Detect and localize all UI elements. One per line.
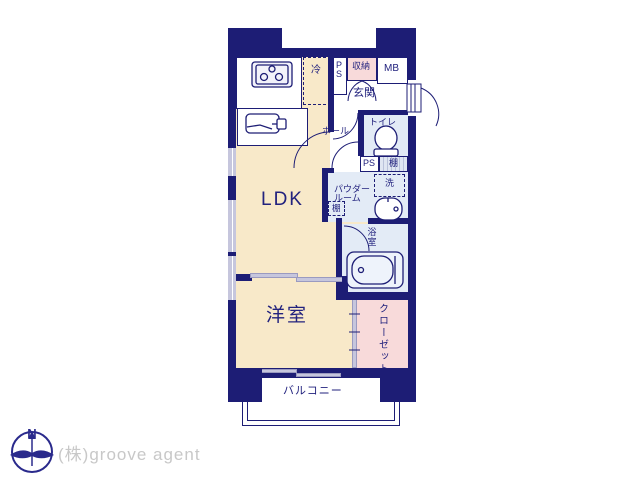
genkan-hall-door-arc: [333, 113, 358, 139]
company-credit: (株)groove agent: [58, 440, 201, 465]
hall-powder-door-arc: [332, 142, 358, 168]
washbasin-icon: [375, 198, 402, 220]
floor-plan-canvas: 冷 PS 収納 MB 玄関 ホール トイレ PS 棚 パウダールーム 洗 棚 浴…: [0, 0, 640, 480]
closet-door-ticks: [349, 314, 360, 350]
stove-icon: [252, 62, 292, 87]
bath-door-arc: [344, 226, 369, 251]
compass-north-label: N: [27, 426, 36, 441]
entrance-door: [407, 84, 439, 126]
sink-icon: [246, 114, 286, 133]
bathtub-icon: [347, 252, 403, 288]
hall-ldk-door-arc: [294, 132, 330, 168]
compass-icon: N: [10, 426, 54, 472]
fixtures-overlay: N: [0, 0, 640, 480]
toilet-icon: [374, 126, 398, 156]
storage-door-arcs: [348, 81, 376, 101]
